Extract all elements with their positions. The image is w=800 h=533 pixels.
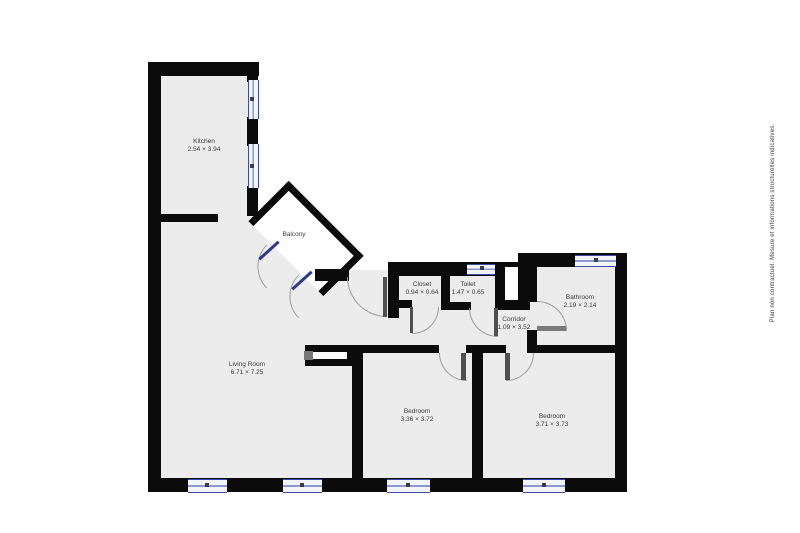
room-dims: 1.47 × 0.65 xyxy=(423,289,513,297)
room-label-kitchen: Kitchen 2.54 × 3.94 xyxy=(159,138,249,154)
wall-shaft-bottom xyxy=(495,300,530,310)
room-name: Living Room xyxy=(202,361,292,369)
room-name: Bathroom xyxy=(535,294,625,302)
bedroom-1-door-leaf xyxy=(461,353,466,380)
wall-toilet-bottom xyxy=(441,302,471,310)
closet-door-leaf xyxy=(410,307,413,333)
room-dims: 2.19 × 2.14 xyxy=(535,302,625,310)
wall-bedroom-partition xyxy=(472,353,483,480)
wall-bedrooms-top-b xyxy=(466,345,506,353)
living-window-2-handle xyxy=(300,483,304,487)
disclaimer-text: Plan non contractuel. Mesure et informat… xyxy=(770,13,780,433)
room-dims: 1.09 × 3.52 xyxy=(469,324,559,332)
room-label-toilet: Toilet 1.47 × 0.65 xyxy=(423,281,513,297)
bedroom-2-window-handle xyxy=(542,483,546,487)
room-name: Corridor xyxy=(469,316,559,324)
floor-plan: Kitchen 2.54 × 3.94 Balcony Closet 0.94 … xyxy=(0,0,800,533)
bedroom-1-window-handle xyxy=(406,483,410,487)
room-label-balcony: Balcony xyxy=(249,231,339,239)
wall-kitchen-stub xyxy=(161,214,218,222)
wall-kitchen-right-a xyxy=(247,62,258,82)
room-name: Bedroom xyxy=(507,413,597,421)
bedroom-2-door-leaf xyxy=(505,353,510,380)
room-dims: 2.54 × 3.94 xyxy=(159,146,249,154)
room-label-bathroom: Bathroom 2.19 × 2.14 xyxy=(535,294,625,310)
wall-hall-top xyxy=(315,269,349,281)
wall-living-right xyxy=(352,345,363,480)
kitchen-window-2-handle xyxy=(250,164,254,168)
wall-kitchen-top xyxy=(148,62,259,76)
room-dims: 3.71 × 3.73 xyxy=(507,421,597,429)
room-name: Balcony xyxy=(249,231,339,239)
room-name: Toilet xyxy=(423,281,513,289)
wall-kitchen-right-c xyxy=(247,186,258,216)
room-label-living-room: Living Room 6.71 × 7.25 xyxy=(202,361,292,377)
pocket-door-slot xyxy=(313,352,347,359)
kitchen-window-1-handle xyxy=(250,97,254,101)
room-label-corridor: Corridor 1.09 × 3.52 xyxy=(469,316,559,332)
room-dims: 3.36 × 3.72 xyxy=(372,416,462,424)
room-dims: 6.71 × 7.25 xyxy=(202,369,292,377)
room-name: Bedroom xyxy=(372,408,462,416)
wall-bedrooms-top-a xyxy=(363,345,439,353)
bathroom-window-handle xyxy=(594,258,598,262)
pocket-door-stub xyxy=(304,351,313,360)
living-window-1-handle xyxy=(205,483,209,487)
wall-left xyxy=(148,62,161,492)
room-label-bedroom-2: Bedroom 3.71 × 3.73 xyxy=(507,413,597,429)
room-name: Kitchen xyxy=(159,138,249,146)
wall-bedrooms-top-c xyxy=(529,345,616,353)
wall-right xyxy=(615,253,627,492)
toilet-window-handle xyxy=(480,266,484,270)
room-label-bedroom-1: Bedroom 3.36 × 3.72 xyxy=(372,408,462,424)
